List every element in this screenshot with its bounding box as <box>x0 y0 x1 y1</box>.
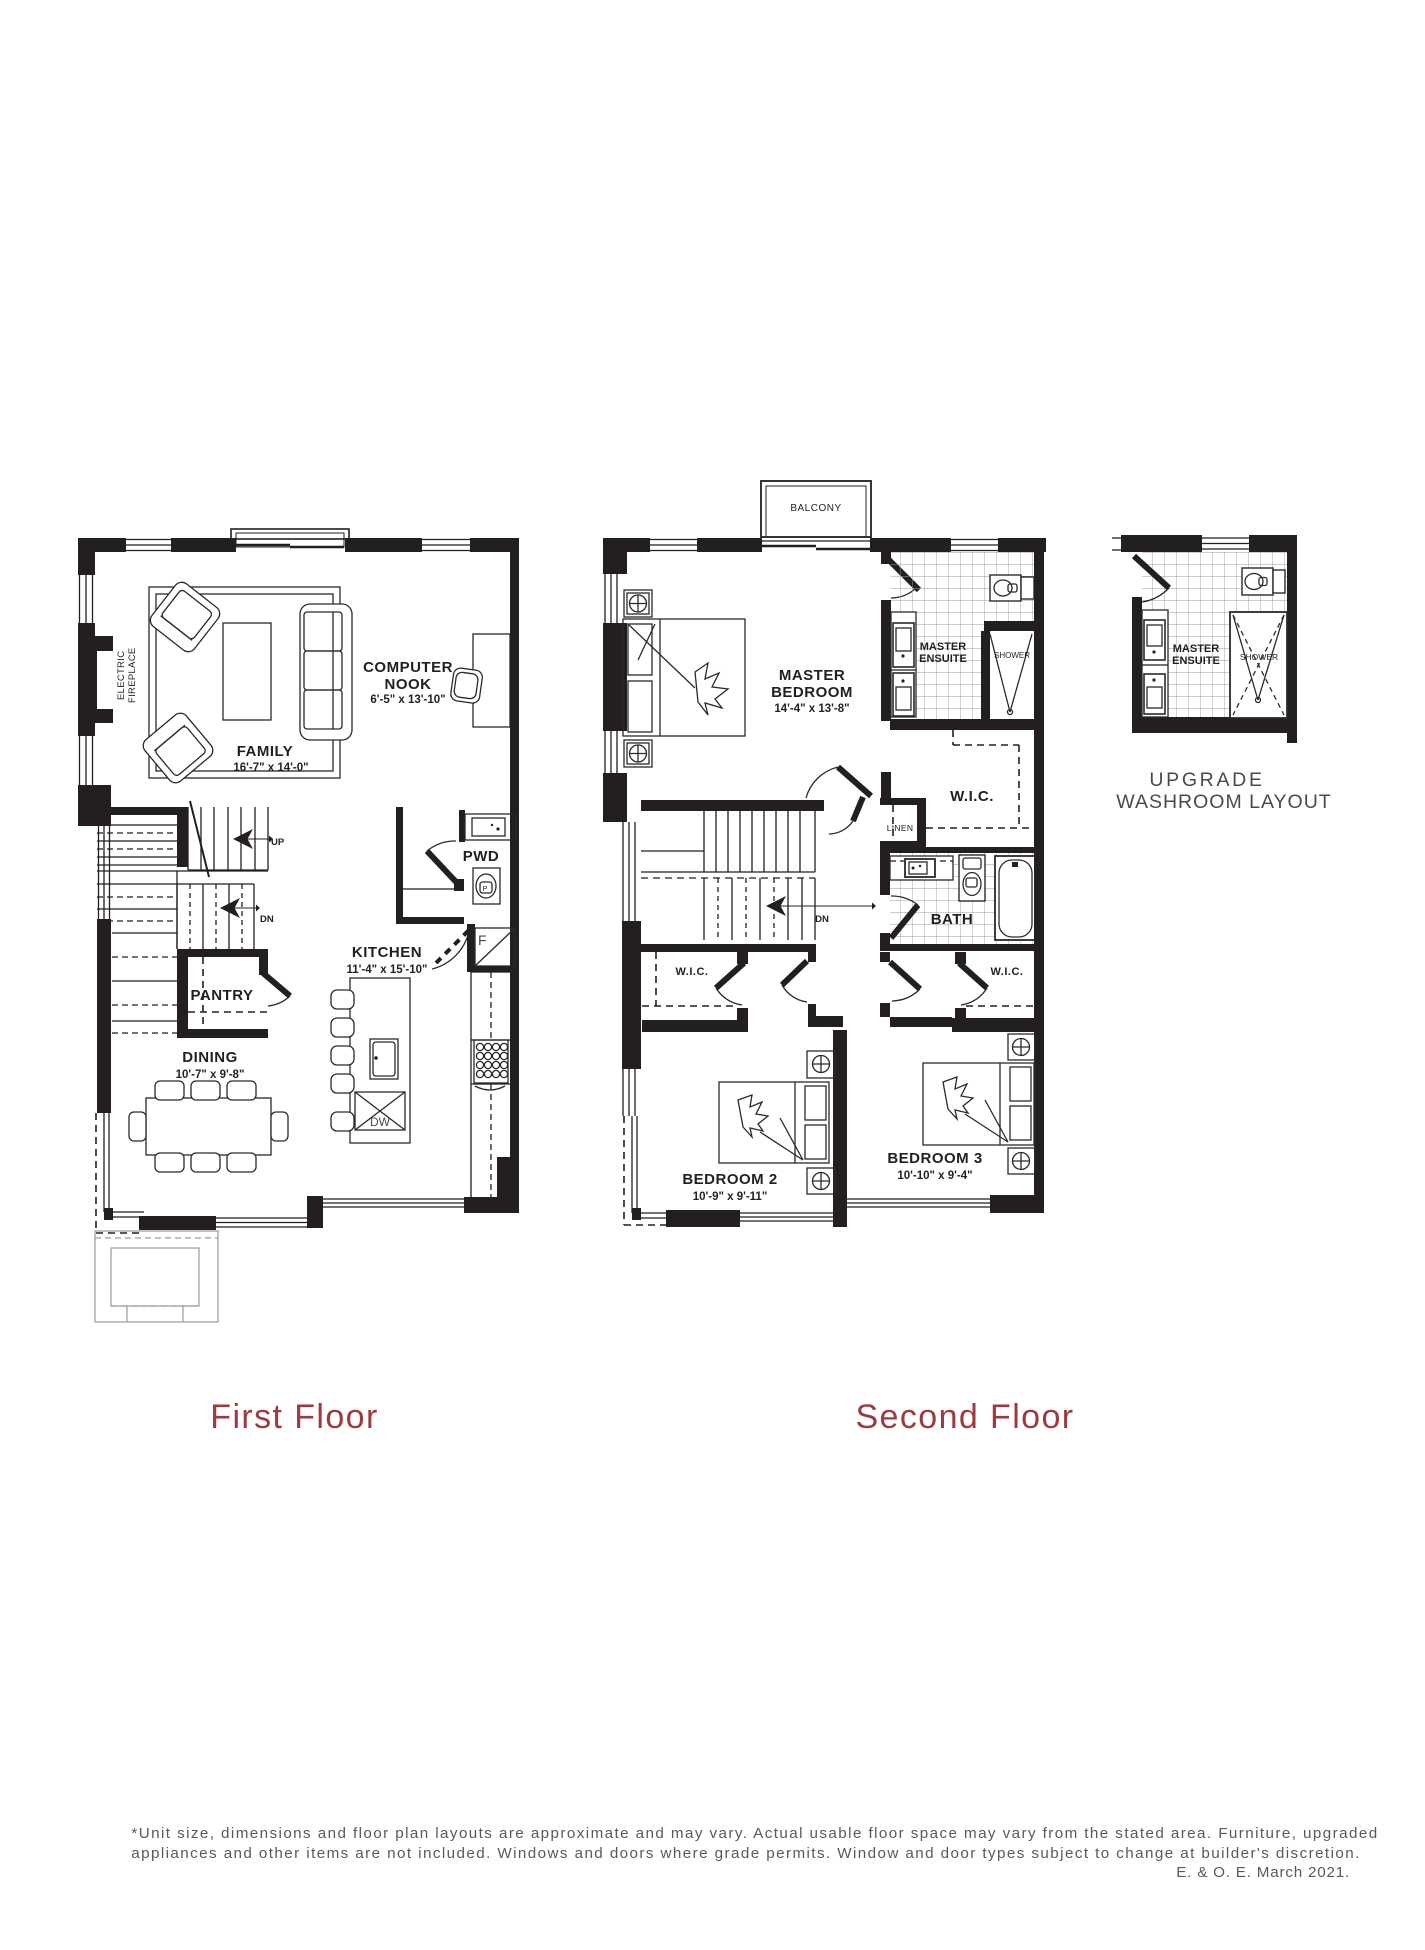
svg-text:DN: DN <box>815 914 829 925</box>
svg-text:W.I.C.: W.I.C. <box>950 788 994 805</box>
svg-text:DINING: DINING <box>182 1049 238 1066</box>
svg-text:MASTER: MASTER <box>920 641 967 653</box>
svg-text:6'-5" x 13'-10": 6'-5" x 13'-10" <box>370 694 445 706</box>
svg-text:COMPUTER: COMPUTER <box>363 659 453 676</box>
svg-text:FIREPLACE: FIREPLACE <box>127 648 138 704</box>
svg-text:appliances and other items are: appliances and other items are not inclu… <box>131 1845 1361 1862</box>
svg-text:P: P <box>483 884 488 893</box>
svg-text:MASTER: MASTER <box>1173 643 1220 655</box>
svg-text:ELECTRIC: ELECTRIC <box>116 651 127 700</box>
svg-text:BALCONY: BALCONY <box>790 503 841 514</box>
svg-text:16'-7" x 14'-0": 16'-7" x 14'-0" <box>233 762 308 774</box>
svg-text:DN: DN <box>260 914 274 925</box>
svg-text:DW: DW <box>370 1115 391 1129</box>
svg-text:*Unit size, dimensions and flo: *Unit size, dimensions and floor plan la… <box>131 1825 1378 1842</box>
svg-text:MASTER: MASTER <box>779 667 845 684</box>
svg-text:10'-7" x 9'-8": 10'-7" x 9'-8" <box>176 1069 245 1081</box>
svg-text:PANTRY: PANTRY <box>191 987 254 1004</box>
svg-text:FAMILY: FAMILY <box>237 743 294 760</box>
svg-text:NOOK: NOOK <box>385 676 432 693</box>
svg-text:14'-4" x 13'-8": 14'-4" x 13'-8" <box>774 703 849 715</box>
svg-text:E. & O. E. March 2021.: E. & O. E. March 2021. <box>1176 1864 1350 1881</box>
svg-text:11'-4" x 15'-10": 11'-4" x 15'-10" <box>347 964 428 976</box>
svg-text:ENSUITE: ENSUITE <box>919 653 967 665</box>
svg-text:W.I.C.: W.I.C. <box>676 966 709 978</box>
svg-text:First Floor: First Floor <box>210 1398 378 1436</box>
svg-text:10'-9" x 9'-11": 10'-9" x 9'-11" <box>693 1191 768 1203</box>
svg-text:10'-10" x 9'-4": 10'-10" x 9'-4" <box>897 1170 972 1182</box>
svg-text:UP: UP <box>271 837 285 848</box>
svg-text:LINEN: LINEN <box>887 823 914 833</box>
svg-text:F: F <box>478 932 487 948</box>
svg-text:PWD: PWD <box>463 848 500 865</box>
svg-text:WASHROOM LAYOUT: WASHROOM LAYOUT <box>1116 791 1331 813</box>
svg-text:UPGRADE: UPGRADE <box>1149 769 1264 791</box>
svg-text:KITCHEN: KITCHEN <box>352 944 422 961</box>
svg-text:ENSUITE: ENSUITE <box>1172 655 1220 667</box>
svg-text:W.I.C.: W.I.C. <box>991 966 1024 978</box>
svg-text:SHOWER: SHOWER <box>1240 652 1278 662</box>
svg-text:BEDROOM 2: BEDROOM 2 <box>682 1171 777 1188</box>
svg-text:BATH: BATH <box>931 911 974 928</box>
svg-text:SHOWER: SHOWER <box>994 651 1030 660</box>
svg-text:Second Floor: Second Floor <box>855 1398 1074 1436</box>
svg-text:BEDROOM 3: BEDROOM 3 <box>887 1150 982 1167</box>
svg-text:BEDROOM: BEDROOM <box>771 684 853 701</box>
